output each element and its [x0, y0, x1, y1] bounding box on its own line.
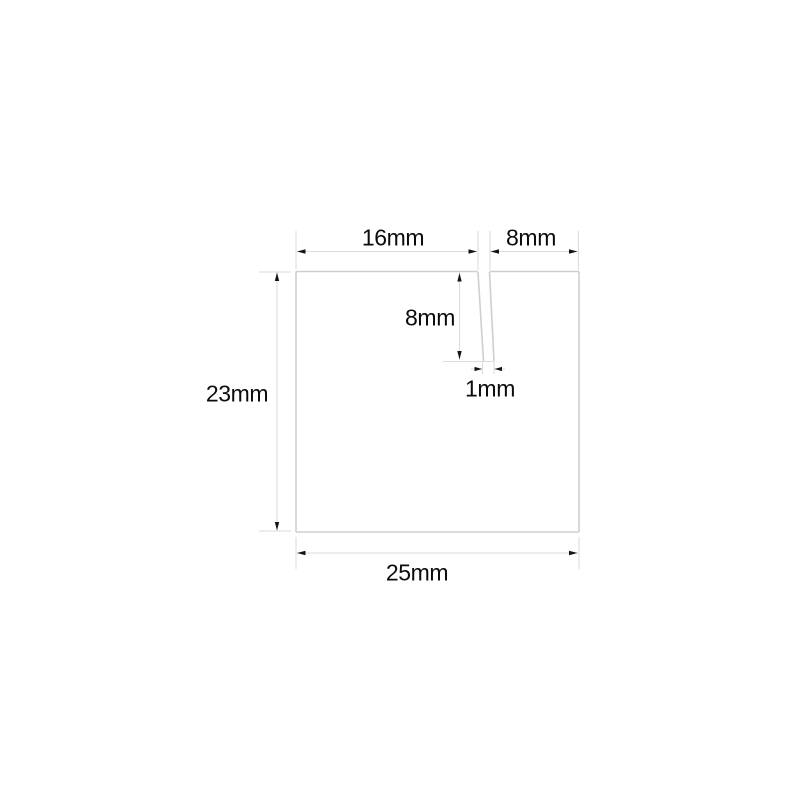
arrow-left-height-up	[275, 273, 279, 282]
arrowheads	[275, 249, 578, 555]
dimension-lines	[259, 231, 579, 569]
arrow-left-height-down	[275, 522, 279, 531]
slot-right-wall	[490, 272, 495, 361]
technical-dimension-drawing: 16mm 8mm 8mm 1mm 23mm 25mm	[0, 0, 800, 800]
arrow-slot-width-right	[495, 367, 503, 371]
arrow-top-width-right	[469, 249, 478, 254]
arrow-top-right-left	[491, 249, 500, 254]
dim-label-top-width: 16mm	[362, 227, 424, 250]
arrow-top-width-left	[297, 249, 306, 254]
arrow-bottom-width-right	[569, 551, 578, 555]
arrow-slot-depth-down	[457, 351, 461, 360]
arrow-slot-width-left	[475, 367, 483, 371]
dim-label-slot-depth: 8mm	[405, 307, 455, 330]
slot-left-wall	[478, 272, 484, 361]
drawing-svg	[0, 0, 800, 800]
dim-label-bottom-width: 25mm	[386, 562, 448, 585]
dim-label-left-height: 23mm	[206, 383, 268, 406]
dim-label-slot-width: 1mm	[465, 378, 515, 401]
arrow-top-right-right	[569, 249, 578, 254]
dim-label-top-right-width: 8mm	[506, 227, 556, 250]
arrow-slot-depth-up	[457, 273, 461, 282]
arrow-bottom-width-left	[297, 551, 306, 555]
